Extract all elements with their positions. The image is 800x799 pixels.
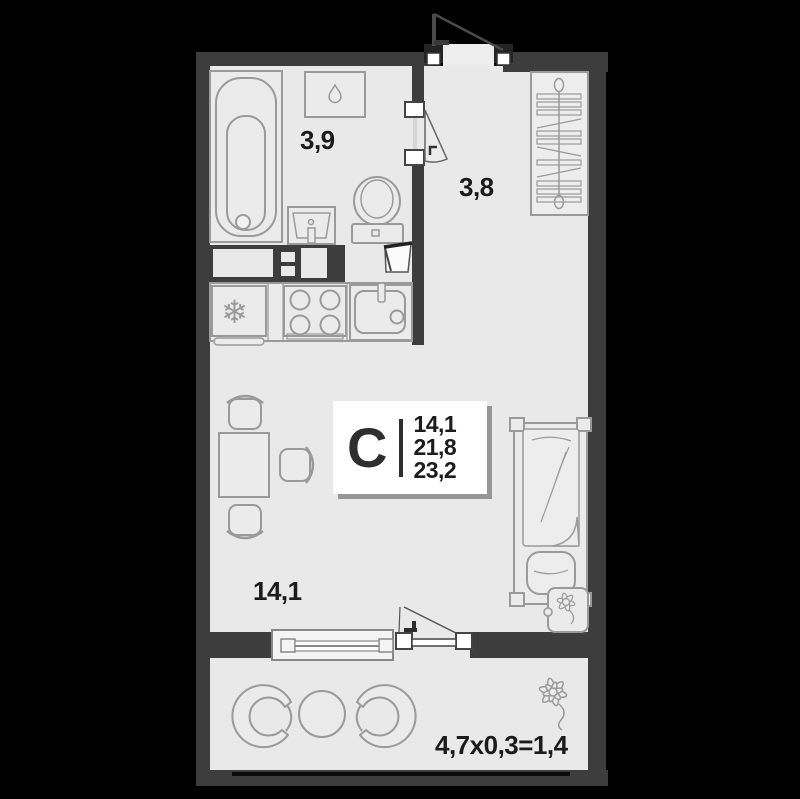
nightstand-icon bbox=[544, 588, 588, 632]
living-area-label: 14,1 bbox=[253, 576, 302, 607]
bathroom-door-icon bbox=[405, 102, 447, 165]
bathroom-area-label: 3,9 bbox=[300, 125, 335, 156]
bathroom-corner-door-icon bbox=[384, 243, 412, 272]
unit-area-3: 23,2 bbox=[413, 459, 456, 482]
flower-icon bbox=[538, 677, 567, 730]
armchair-icon-right bbox=[357, 685, 416, 747]
stove-icon bbox=[284, 286, 346, 339]
washbasin-icon bbox=[288, 207, 335, 244]
chair-icon-top bbox=[227, 396, 263, 429]
armchair-icon-left bbox=[232, 685, 291, 747]
card-divider bbox=[399, 419, 403, 477]
dining-table-icon bbox=[219, 433, 269, 497]
kitchen-sink-icon bbox=[350, 283, 412, 340]
wardrobe-icon bbox=[531, 72, 588, 215]
chair-icon-right bbox=[280, 447, 313, 483]
unit-type-letter: С bbox=[347, 420, 387, 476]
balcony-formula-label: 4,7x0,3=1,4 bbox=[435, 730, 568, 761]
bathtub-icon bbox=[210, 71, 282, 242]
hallway-area-label: 3,8 bbox=[459, 172, 494, 203]
round-table-icon bbox=[299, 691, 345, 737]
floor-plan: ❄ 3,9 3,8 14,1 4,7x0,3=1,4 С 14,1 21,8 2… bbox=[0, 0, 800, 799]
furniture-layer bbox=[0, 0, 800, 799]
unit-area-1: 14,1 bbox=[413, 413, 456, 436]
bed-icon bbox=[510, 418, 591, 606]
balcony-door-icon bbox=[396, 607, 472, 649]
chair-icon-bottom bbox=[227, 505, 263, 538]
toilet-icon bbox=[352, 177, 403, 243]
window-icon bbox=[272, 630, 393, 660]
snowflake-icon: ❄ bbox=[221, 293, 248, 331]
water-heater-icon bbox=[305, 72, 365, 117]
entrance-door-icon bbox=[424, 14, 513, 65]
unit-area-2: 21,8 bbox=[413, 436, 456, 459]
unit-info-card: С 14,1 21,8 23,2 bbox=[333, 401, 487, 494]
